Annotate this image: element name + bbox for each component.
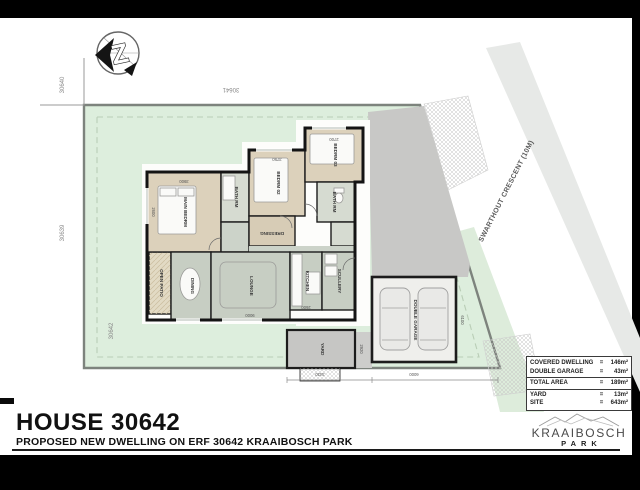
parcel-30642: 30642 [109, 322, 115, 339]
dim-bed03-w: 2700 [329, 137, 339, 142]
label-open-patio: OPEN PATIO [159, 269, 164, 297]
label-garage: DOUBLE GARAGE [413, 300, 418, 341]
page-title: HOUSE 30642 [16, 410, 353, 435]
dim-kitchen-w: 2600 [301, 305, 311, 310]
equals-sign: = [597, 368, 606, 377]
equals-sign: = [597, 399, 606, 408]
table-row: DOUBLE GARAGE = 43m² [530, 368, 628, 377]
dim-main-bed-d: 2600 [151, 207, 156, 217]
dim-yard-w: 3430 [315, 372, 325, 377]
dim-lounge-w: 9000 [245, 313, 255, 318]
parcel-30640: 30640 [60, 76, 66, 93]
title-block: HOUSE 30642 PROPOSED NEW DWELLING ON ERF… [16, 410, 353, 448]
room-dressing [249, 216, 295, 246]
room-wc [331, 222, 355, 246]
page-subtitle: PROPOSED NEW DWELLING ON ERF 30642 KRAAI… [16, 436, 353, 448]
dim-garage-w: 6000 [409, 372, 419, 377]
label-main-bedrm: MAIN BEDRM [183, 197, 188, 227]
area-label: COVERED DWELLING [530, 359, 597, 368]
area-label: YARD [530, 391, 597, 400]
area-value: 146m² [606, 359, 628, 368]
label-yard: YARD [320, 343, 325, 356]
area-label: TOTAL AREA [530, 379, 597, 388]
equals-sign: = [597, 359, 606, 368]
scan-mark [0, 398, 14, 404]
label-dining: DINING [190, 278, 195, 295]
dim-main-bed-w: 3900 [179, 179, 189, 184]
area-value: 643m² [606, 399, 628, 408]
dim-yard-d: 2920 [359, 344, 364, 354]
parcel-30639: 30639 [60, 224, 66, 241]
dim-garage-d: 6100 [460, 315, 465, 325]
table-row: COVERED DWELLING = 146m² [530, 359, 628, 368]
table-separator [527, 389, 631, 390]
label-lounge: LOUNGE [249, 276, 254, 296]
label-scullery: SCULLERY [337, 269, 342, 294]
area-value: 189m² [606, 379, 628, 388]
label-bedrm02: BEDRM 02 [276, 171, 281, 195]
site-plan-sheet: MAIN BEDRM BATH RM BEDRM 02 BEDRM 03 BAT… [0, 0, 640, 490]
area-value: 43m² [606, 368, 628, 377]
equals-sign: = [597, 379, 606, 388]
label-bedrm03: BEDRM 03 [333, 143, 338, 167]
equals-sign: = [597, 391, 606, 400]
room-hall [221, 222, 249, 252]
area-label: DOUBLE GARAGE [530, 368, 597, 377]
area-schedule-table: COVERED DWELLING = 146m² DOUBLE GARAGE =… [526, 356, 632, 411]
logo-name: KRAAIBOSCH [526, 427, 632, 439]
kraaibosch-park-logo: KRAAIBOSCH PARK [526, 413, 632, 448]
label-kitchen: KITCHEN [305, 271, 310, 292]
room-passage [249, 246, 355, 252]
area-label: SITE [530, 399, 597, 408]
dim-bed02-w: 3750 [272, 157, 282, 162]
label-dressing: DRESSING [260, 231, 284, 236]
mountain-icon [537, 413, 621, 427]
table-row: YARD = 13m² [530, 391, 628, 400]
table-row: TOTAL AREA = 189m² [530, 379, 628, 388]
area-value: 13m² [606, 391, 628, 400]
label-bath2: BATH RM [332, 192, 337, 213]
parcel-30641: 30641 [222, 86, 239, 92]
logo-sub: PARK [526, 440, 632, 448]
label-bath-main: BATH RM [234, 187, 239, 208]
table-separator [527, 377, 631, 378]
title-rule [12, 449, 620, 451]
table-row: SITE = 643m² [530, 399, 628, 408]
